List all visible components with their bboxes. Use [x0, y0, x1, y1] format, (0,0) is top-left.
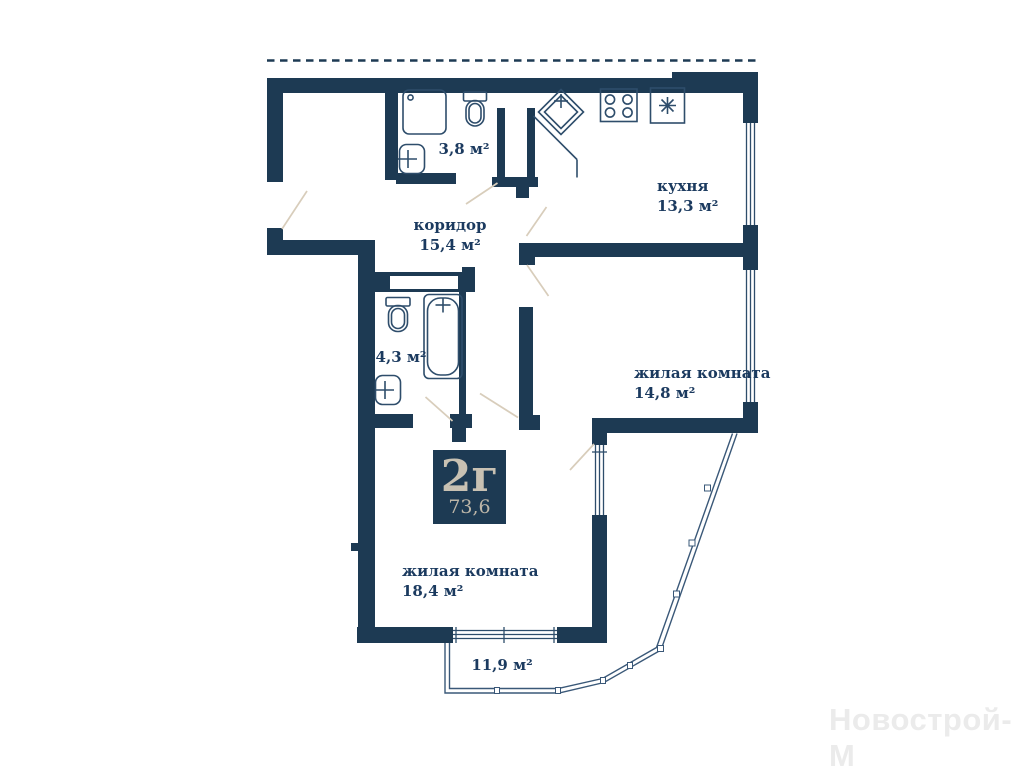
- room-label-bathroom-big: 4,3 м²: [366, 347, 436, 367]
- toilet-icon: [464, 92, 487, 126]
- wall-entry-stub: [267, 228, 283, 242]
- wall-bath1-bottom: [396, 173, 456, 184]
- shower-icon: [403, 90, 446, 134]
- wall-bath2-corner-h: [450, 414, 472, 428]
- room2-window: [453, 627, 557, 643]
- bath1-door-swing: [466, 183, 498, 204]
- wall-left-bump: [351, 543, 358, 551]
- wall-bath2-corner-v: [452, 428, 466, 442]
- room-label-kitchen: кухня 13,3 м²: [657, 176, 718, 216]
- room-name: кухня: [657, 176, 718, 196]
- kitchen-door-swing: [527, 207, 547, 236]
- wall-left-outer: [267, 78, 283, 182]
- room-name: жилая комната: [402, 561, 538, 581]
- balcony-door-window: [592, 445, 607, 515]
- room-label-living-bottom: жилая комната 18,4 м²: [402, 561, 538, 601]
- wall-bottom-left: [357, 627, 453, 643]
- stove-icon: [601, 89, 638, 122]
- floor-plan-page: 3,8 м² кухня 13,3 м² коридор 15,4 м² 4,3…: [0, 0, 1024, 768]
- wall-right-c: [743, 402, 758, 433]
- fridge-icon: [651, 88, 685, 123]
- room-label-balcony: 11,9 м²: [462, 655, 542, 675]
- wall-niche-right: [527, 108, 535, 180]
- room-area: 15,4 м²: [399, 235, 501, 255]
- wall-bath2-stub: [462, 267, 475, 292]
- wall-niche-stub: [516, 187, 529, 198]
- toilet-icon: [386, 298, 410, 332]
- vent-shaft: [390, 276, 458, 289]
- layout-badge: 2г 73,6: [433, 450, 506, 524]
- room-area: 14,8 м²: [634, 383, 770, 403]
- corridor-room2-door-swing: [480, 394, 518, 418]
- sink-icon: [375, 376, 401, 405]
- room-area: 11,9 м²: [462, 655, 542, 675]
- layout-code: 2г: [441, 457, 499, 497]
- layout-total-area: 73,6: [448, 497, 490, 517]
- wall-bath2-bottom: [375, 414, 413, 428]
- wall-kitchen-room1: [535, 243, 745, 257]
- wall-entry-bottom: [267, 240, 375, 255]
- wall-left-lower: [358, 253, 375, 643]
- wall-right-a: [743, 93, 758, 123]
- room-label-living-right: жилая комната 14,8 м²: [634, 363, 770, 403]
- room1-door-swing: [527, 265, 549, 296]
- wall-room1-bottom: [593, 418, 745, 433]
- walls: [267, 72, 758, 643]
- sink-icon: [398, 145, 425, 174]
- wall-corridor-foot: [519, 415, 540, 430]
- room-area: 4,3 м²: [366, 347, 436, 367]
- bath2-door-swing: [426, 397, 453, 421]
- wall-right-b: [743, 225, 758, 270]
- room-area: 18,4 м²: [402, 581, 538, 601]
- entry-door-swing: [282, 191, 307, 229]
- wall-corridor-room1: [519, 307, 533, 418]
- room-name: жилая комната: [634, 363, 770, 383]
- room-area: 3,8 м²: [429, 139, 499, 159]
- wall-niche-bottom: [492, 177, 538, 187]
- wall-bath1-left: [385, 93, 398, 180]
- room1-room2-door-swing: [570, 444, 594, 470]
- room-label-bathroom-small: 3,8 м²: [429, 139, 499, 159]
- room-label-corridor: коридор 15,4 м²: [399, 215, 501, 255]
- wall-room2-right: [592, 515, 607, 643]
- room-area: 13,3 м²: [657, 196, 718, 216]
- floor-plan-drawing: [0, 0, 1024, 768]
- room-name: коридор: [399, 215, 501, 235]
- developer-watermark: Новострой-М: [829, 702, 1024, 768]
- kitchen-window: [743, 123, 758, 225]
- wall-kitchen-stub: [519, 243, 535, 265]
- wall-top-left: [267, 78, 672, 93]
